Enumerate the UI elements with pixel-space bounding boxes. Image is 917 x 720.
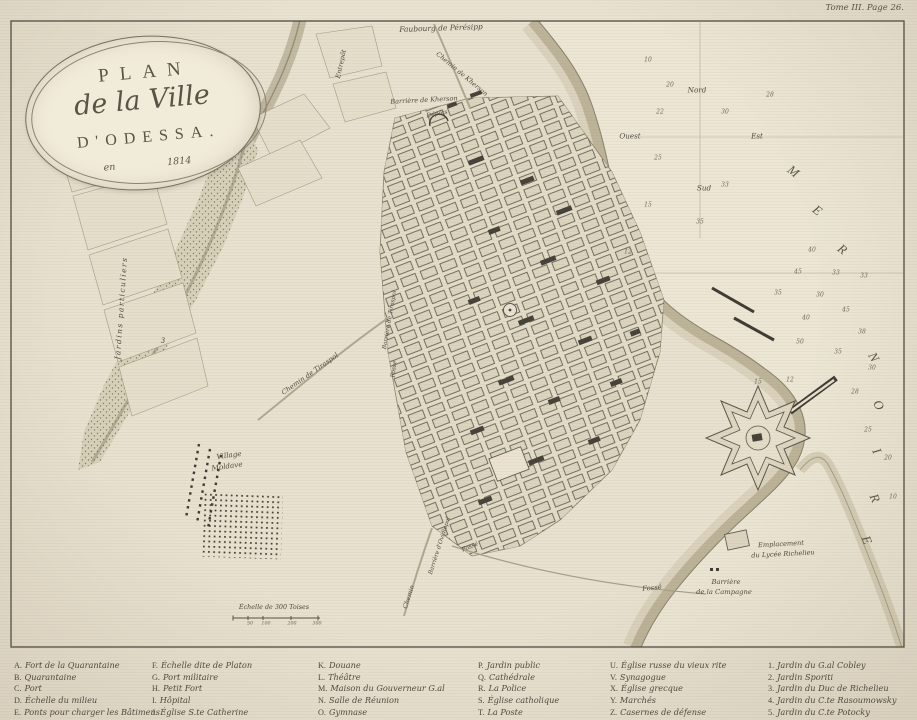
legend-label: Synagogue [620, 672, 666, 682]
page-reference: Tome III. Page 26. [826, 3, 905, 13]
legend-item: R.La Police [478, 683, 559, 695]
legend-key: X. [610, 684, 618, 693]
legend-key: J. [152, 708, 157, 717]
map-sheet: Tome III. Page 26. [0, 0, 917, 720]
legend-key: U. [610, 661, 618, 670]
legend-label: Ponts pour charger les Bâtimens [24, 707, 160, 717]
legend-label: Jardin du C.te Rasoumowsky [777, 695, 896, 705]
legend-item: A.Fort de la Quarantaine [14, 660, 160, 672]
legend-item: 2.Jardin Sporiti [768, 672, 897, 684]
legend-column-1: A.Fort de la QuarantaineB.QuarantaineC.P… [14, 660, 160, 719]
legend-key: D. [14, 696, 22, 705]
legend-label: Marchés [620, 695, 656, 705]
legend-key: K. [318, 661, 326, 670]
legend-key: C. [14, 684, 22, 693]
legend-key: Q. [478, 673, 486, 682]
legend-item: B.Quarantaine [14, 672, 160, 684]
legend-key: S. [478, 696, 485, 705]
legend-item: 1.Jardin du G.al Cobley [768, 660, 897, 672]
legend-key: 2. [768, 673, 774, 682]
legend-item: V.Synagogue [610, 672, 726, 684]
village-moldave-square [202, 492, 283, 560]
legend-key: 5. [768, 708, 774, 717]
legend-item: O.Gymnase [318, 707, 445, 719]
legend-item: N.Salle de Réunion [318, 695, 445, 707]
legend-label: Cathédrale [489, 672, 535, 682]
legend-key: T. [478, 708, 484, 717]
map-year-en: en [103, 162, 116, 174]
legend-label: Église grecque [621, 683, 683, 693]
legend-key: P. [478, 661, 484, 670]
legend-item: 5.Jardin du C.te Potocky [768, 707, 897, 719]
legend-item: 3.Jardin du Duc de Richelieu [768, 683, 897, 695]
map-legend: A.Fort de la QuarantaineB.QuarantaineC.P… [0, 655, 917, 720]
legend-key: O. [318, 708, 326, 717]
legend-key: R. [478, 684, 486, 693]
legend-key: N. [318, 696, 326, 705]
legend-label: Port [25, 683, 42, 693]
legend-key: V. [610, 673, 617, 682]
legend-key: L. [318, 673, 325, 682]
legend-key: 1. [768, 661, 774, 670]
legend-label: Douane [329, 660, 361, 670]
legend-label: Jardin du G.al Cobley [777, 660, 865, 670]
legend-label: Théâtre [328, 672, 361, 682]
legend-item: C.Port [14, 683, 160, 695]
legend-item: F.Échelle dite de Platon [152, 660, 252, 672]
legend-label: Port militaire [163, 672, 218, 682]
legend-key: E. [14, 708, 21, 717]
legend-column-4: P.Jardin publicQ.CathédraleR.La PoliceS.… [478, 660, 559, 719]
legend-label: Maison du Gouverneur G.al [330, 683, 444, 693]
legend-item: Y.Marchés [610, 695, 726, 707]
legend-label: Gymnase [329, 707, 367, 717]
legend-key: B. [14, 673, 22, 682]
legend-item: T.La Poste [478, 707, 559, 719]
legend-item: G.Port militaire [152, 672, 252, 684]
legend-key: 4. [768, 696, 774, 705]
legend-item: S.Église catholique [478, 695, 559, 707]
legend-column-3: K.DouaneL.ThéâtreM.Maison du Gouverneur … [318, 660, 445, 719]
legend-label: La Poste [487, 707, 522, 717]
legend-label: Casernes de défense [620, 707, 706, 717]
legend-column-2: F.Échelle dite de PlatonG.Port militaire… [152, 660, 252, 719]
legend-label: Jardin public [487, 660, 540, 670]
legend-label: Église russe du vieux rite [621, 660, 727, 670]
legend-item: J.Église S.te Catherine [152, 707, 252, 719]
legend-label: Jardin du Duc de Richelieu [777, 683, 889, 693]
public-garden-center [509, 309, 512, 312]
legend-label: Église catholique [488, 695, 560, 705]
legend-label: Jardin du C.te Potocky [777, 707, 870, 717]
legend-item: Q.Cathédrale [478, 672, 559, 684]
legend-key: F. [152, 661, 158, 670]
legend-label: Jardin Sporiti [777, 672, 833, 682]
legend-item: M.Maison du Gouverneur G.al [318, 683, 445, 695]
legend-item: H.Petit Fort [152, 683, 252, 695]
legend-key: M. [318, 684, 327, 693]
legend-item: 4.Jardin du C.te Rasoumowsky [768, 695, 897, 707]
legend-label: Église S.te Catherine [160, 707, 248, 717]
legend-item: K.Douane [318, 660, 445, 672]
map-frame: Faubourg de PérésippChemin de KhersonBar… [0, 0, 917, 720]
legend-label: Quarantaine [25, 672, 77, 682]
legend-item: Z.Casernes de défense [610, 707, 726, 719]
legend-label: Échelle dite de Platon [161, 660, 252, 670]
legend-item: U.Église russe du vieux rite [610, 660, 726, 672]
legend-column-6: 1.Jardin du G.al Cobley2.Jardin Sporiti3… [768, 660, 897, 719]
legend-column-5: U.Église russe du vieux riteV.SynagogueX… [610, 660, 726, 719]
legend-item: I.Hôpital [152, 695, 252, 707]
legend-label: Salle de Réunion [329, 695, 399, 705]
legend-key: A. [14, 661, 22, 670]
legend-label: Hôpital [160, 695, 191, 705]
legend-label: La Police [489, 683, 527, 693]
legend-key: Z. [610, 708, 617, 717]
legend-label: Fort de la Quarantaine [25, 660, 120, 670]
legend-key: I. [152, 696, 157, 705]
legend-label: Petit Fort [163, 683, 202, 693]
legend-item: X.Église grecque [610, 683, 726, 695]
legend-label: Échelle du milieu [25, 695, 97, 705]
quarantine-star-fort [706, 386, 810, 490]
legend-key: 3. [768, 684, 774, 693]
legend-item: P.Jardin public [478, 660, 559, 672]
legend-item: L.Théâtre [318, 672, 445, 684]
map-year-value: 1814 [167, 155, 192, 168]
legend-item: E.Ponts pour charger les Bâtimens [14, 707, 160, 719]
legend-key: Y. [610, 696, 617, 705]
legend-item: D.Échelle du milieu [14, 695, 160, 707]
legend-key: H. [152, 684, 160, 693]
legend-key: G. [152, 673, 160, 682]
